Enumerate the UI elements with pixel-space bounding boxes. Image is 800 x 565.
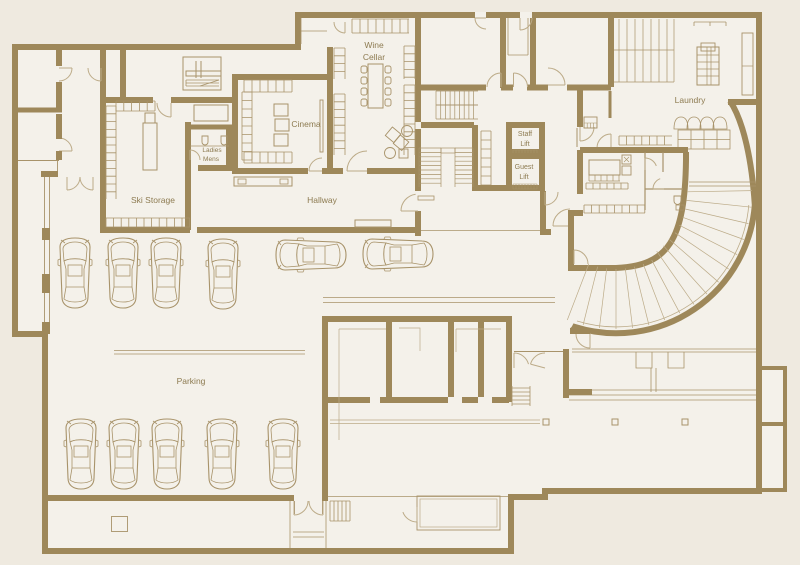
svg-text:Laundry: Laundry [675,95,706,105]
svg-text:Lift: Lift [519,174,528,181]
svg-text:Wine: Wine [364,40,384,50]
svg-text:Mens: Mens [203,156,220,163]
svg-text:Lift: Lift [520,141,529,148]
svg-text:Staff: Staff [518,131,532,138]
svg-text:Parking: Parking [177,376,206,386]
svg-text:Cellar: Cellar [363,52,385,62]
svg-text:Ladies: Ladies [202,147,222,154]
svg-text:Ski Storage: Ski Storage [131,195,175,205]
svg-text:Hallway: Hallway [307,195,338,205]
svg-text:Guest: Guest [515,164,534,171]
svg-text:Cinema: Cinema [291,119,321,129]
